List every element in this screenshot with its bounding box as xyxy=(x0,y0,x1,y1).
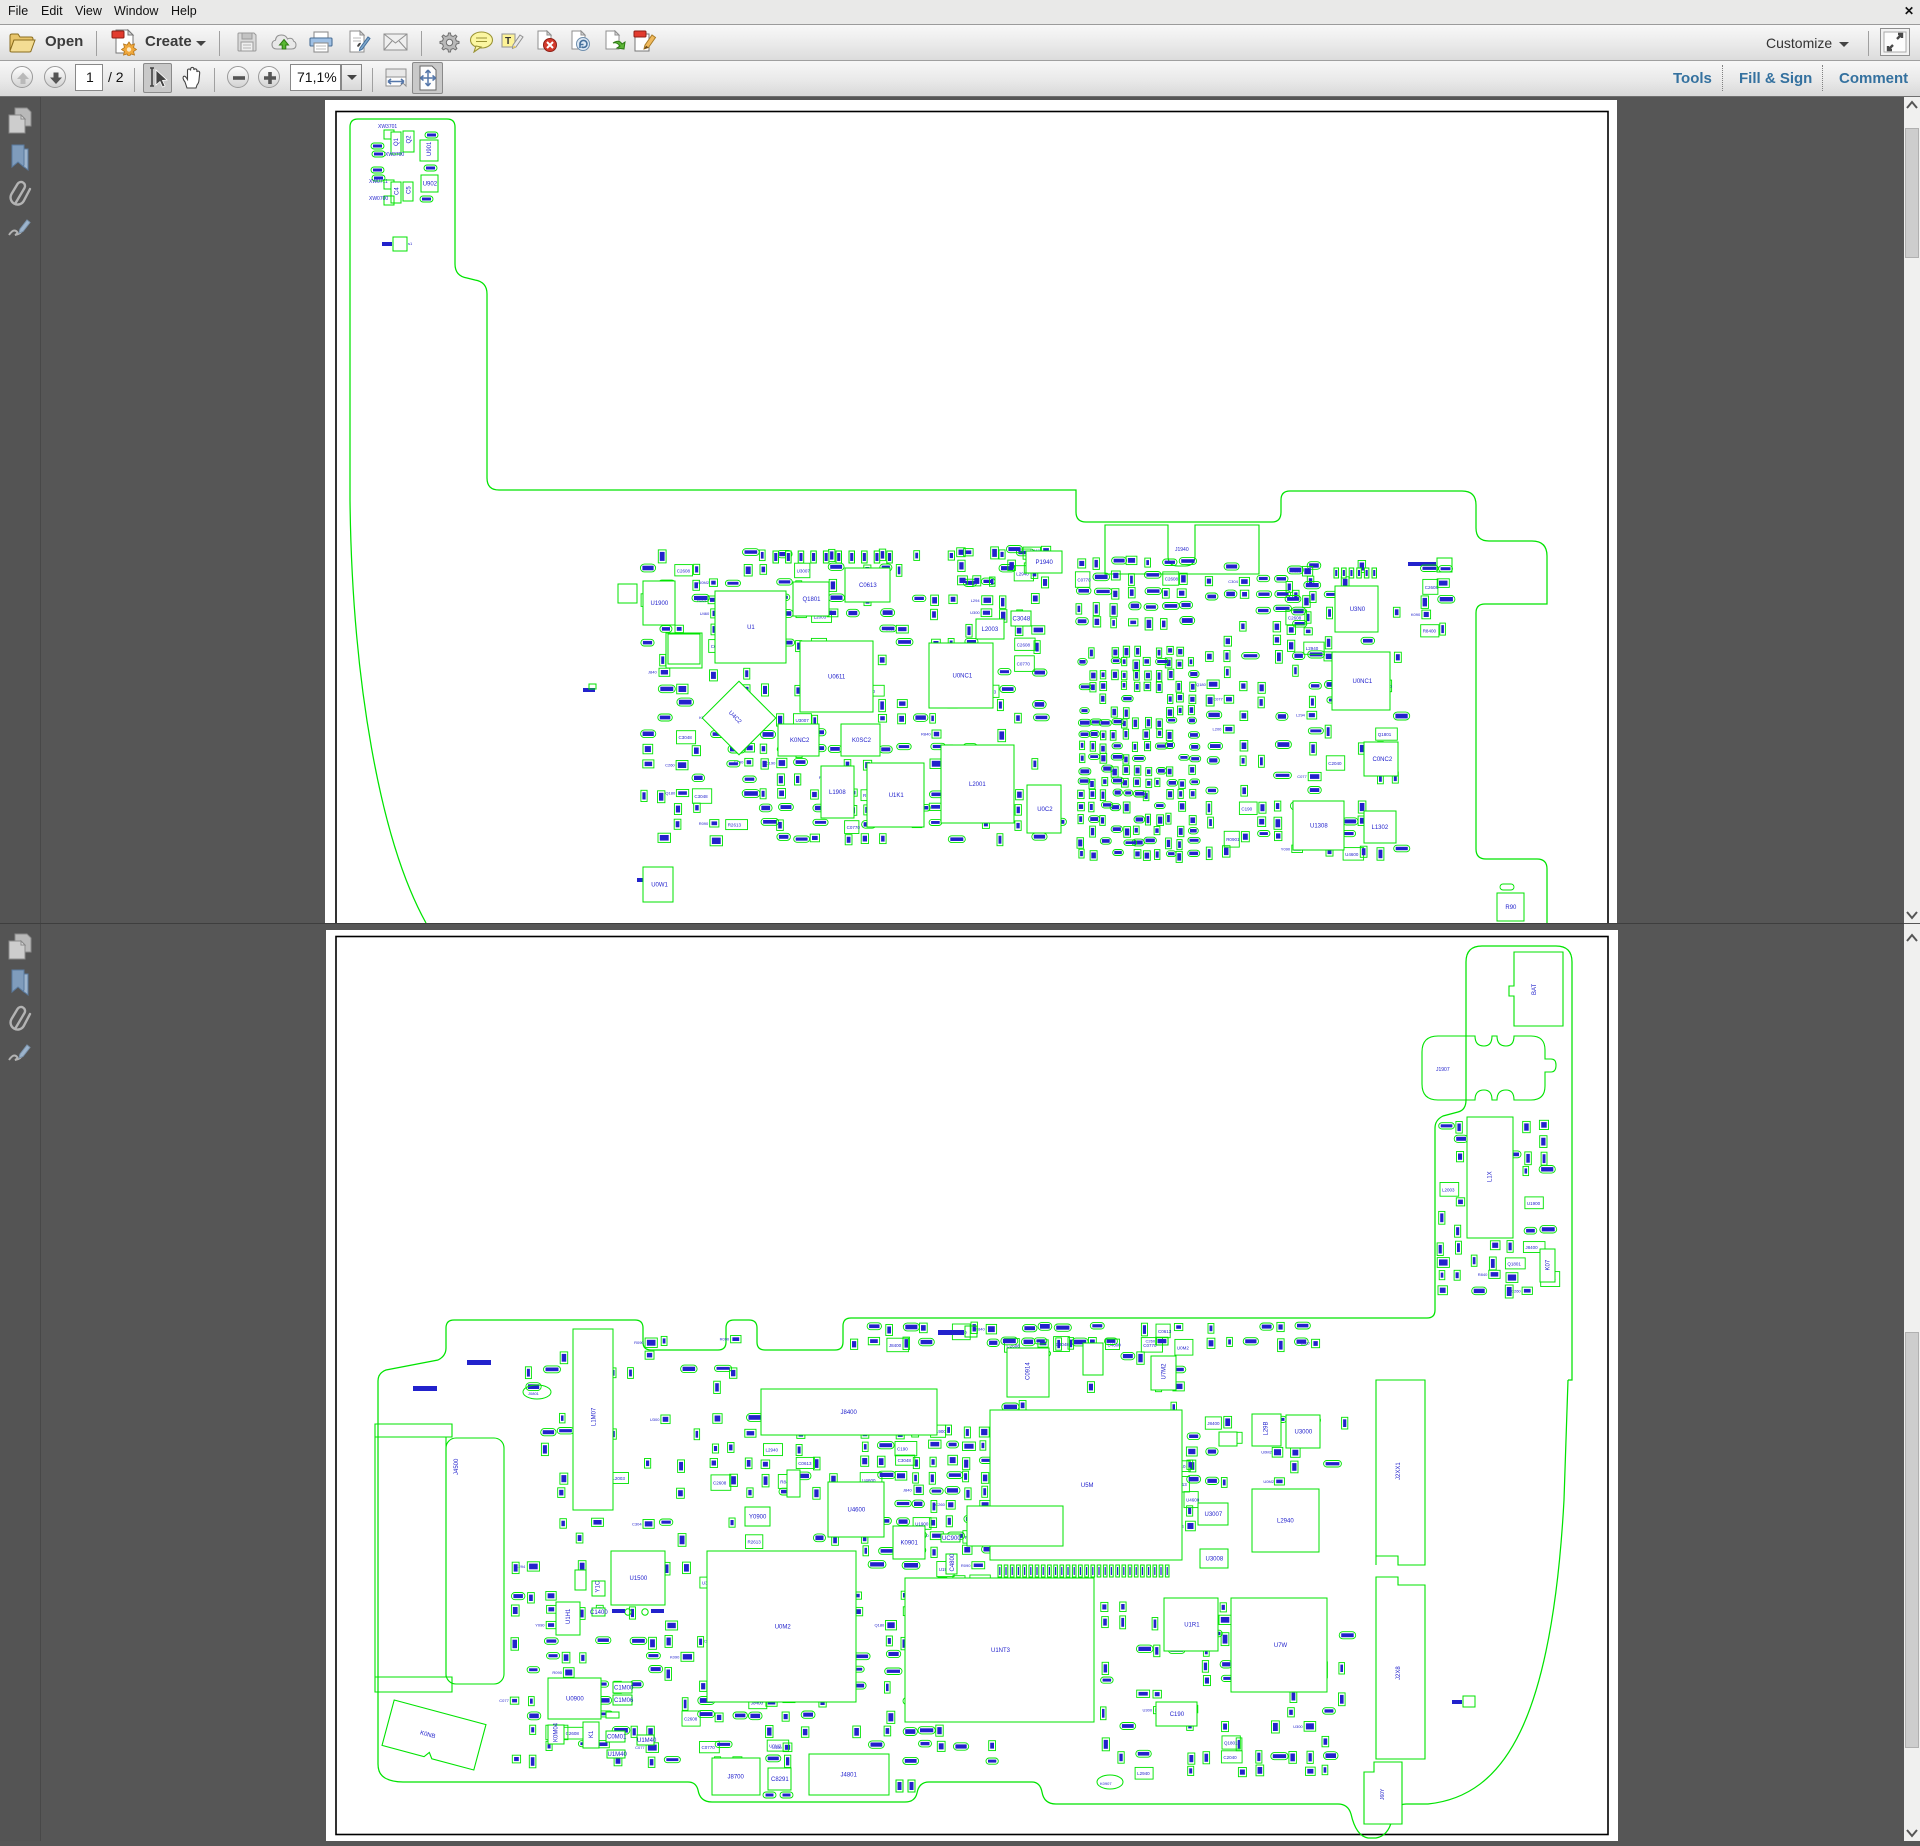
svg-text:C260: C260 xyxy=(665,763,675,768)
svg-text:L2003: L2003 xyxy=(1442,1187,1455,1192)
svg-text:Y090: Y090 xyxy=(1281,846,1291,851)
svg-text:L2003: L2003 xyxy=(612,1476,625,1481)
svg-text:U0611: U0611 xyxy=(828,675,846,681)
svg-text:Q180: Q180 xyxy=(875,1623,886,1628)
svg-text:Y090: Y090 xyxy=(1292,569,1302,574)
svg-text:R90: R90 xyxy=(1505,905,1517,911)
svg-text:C0M01: C0M01 xyxy=(607,1735,627,1741)
svg-text:C1M06: C1M06 xyxy=(614,1698,634,1704)
svg-text:C2040: C2040 xyxy=(1223,1755,1237,1760)
svg-text:K0NC2: K0NC2 xyxy=(790,738,810,744)
svg-text:C077: C077 xyxy=(635,1745,645,1750)
svg-text:Q180: Q180 xyxy=(1196,682,1207,687)
svg-text:C0770: C0770 xyxy=(847,825,861,830)
svg-text:J4801: J4801 xyxy=(841,1773,858,1779)
svg-text:Q1801: Q1801 xyxy=(803,597,822,603)
svg-text:K07: K07 xyxy=(1546,1259,1552,1270)
svg-text:J1907: J1907 xyxy=(1436,1067,1450,1073)
svg-text:C190: C190 xyxy=(897,1447,908,1452)
svg-text:C3048: C3048 xyxy=(1056,1342,1070,1347)
svg-text:J2X8: J2X8 xyxy=(1396,1666,1402,1680)
svg-text:C2608: C2608 xyxy=(713,1481,727,1486)
svg-text:C2040: C2040 xyxy=(1328,761,1342,766)
svg-text:C1400: C1400 xyxy=(590,1610,608,1616)
svg-text:U5M: U5M xyxy=(1081,1483,1094,1489)
svg-text:U0900: U0900 xyxy=(566,1697,584,1703)
svg-text:U3N0: U3N0 xyxy=(1350,607,1366,613)
svg-text:Q1801: Q1801 xyxy=(1224,1741,1238,1746)
svg-text:U1: U1 xyxy=(747,625,755,631)
svg-text:C0914: C0914 xyxy=(1026,1362,1032,1380)
svg-text:J0801: J0801 xyxy=(528,1391,540,1396)
svg-text:XW0700: XW0700 xyxy=(369,196,388,202)
svg-text:XW3700: XW3700 xyxy=(385,152,404,158)
svg-text:J8700: J8700 xyxy=(728,1775,745,1781)
svg-text:K090: K090 xyxy=(670,1654,680,1659)
svg-text:C260: C260 xyxy=(1146,1339,1156,1344)
svg-text:s1: s1 xyxy=(408,241,413,246)
svg-text:C4800: C4800 xyxy=(950,1553,956,1571)
svg-text:C3048: C3048 xyxy=(694,794,708,799)
svg-text:U460: U460 xyxy=(700,611,710,616)
svg-text:L2940: L2940 xyxy=(1306,646,1319,651)
svg-text:L2940: L2940 xyxy=(1277,1519,1294,1525)
svg-text:U3007: U3007 xyxy=(796,718,810,723)
svg-text:U0NC1: U0NC1 xyxy=(1353,679,1373,685)
svg-text:R090: R090 xyxy=(961,1563,971,1568)
svg-text:U4600: U4600 xyxy=(848,1508,866,1514)
svg-text:Y0900: Y0900 xyxy=(749,1515,767,1521)
svg-text:U7W: U7W xyxy=(1274,1643,1288,1649)
svg-text:C2608: C2608 xyxy=(1288,616,1302,621)
svg-text:R261: R261 xyxy=(697,597,707,602)
svg-text:U1R1: U1R1 xyxy=(1184,1623,1200,1629)
svg-text:L1X: L1X xyxy=(1488,1171,1494,1182)
svg-text:U0W1: U0W1 xyxy=(651,883,668,889)
svg-text:L2940: L2940 xyxy=(1137,1771,1150,1776)
svg-text:L294: L294 xyxy=(1296,713,1306,718)
svg-text:C0613: C0613 xyxy=(798,1461,812,1466)
svg-text:R0901: R0901 xyxy=(1226,837,1240,842)
svg-text:L2940: L2940 xyxy=(766,1448,779,1453)
svg-text:Q1801: Q1801 xyxy=(1378,732,1392,737)
svg-text:U1H1: U1H1 xyxy=(566,1608,572,1624)
svg-text:U3007: U3007 xyxy=(797,568,811,573)
svg-text:C190: C190 xyxy=(766,761,776,766)
svg-text:R840: R840 xyxy=(1478,1272,1488,1277)
svg-text:U1500: U1500 xyxy=(630,1576,648,1582)
svg-text:R090: R090 xyxy=(634,1340,644,1345)
svg-text:R2613: R2613 xyxy=(748,1540,762,1545)
svg-text:U4600: U4600 xyxy=(1345,852,1359,857)
svg-text:C304: C304 xyxy=(1228,579,1238,584)
svg-text:U1K1: U1K1 xyxy=(889,793,905,799)
svg-text:C0613: C0613 xyxy=(1158,1329,1172,1334)
svg-text:U3000: U3000 xyxy=(1295,1430,1313,1436)
svg-text:L294: L294 xyxy=(971,598,981,603)
svg-text:BAT: BAT xyxy=(1532,983,1538,995)
svg-text:U1NT3: U1NT3 xyxy=(991,1648,1011,1654)
svg-text:R840: R840 xyxy=(921,732,931,737)
svg-text:K0907: K0907 xyxy=(1100,1781,1112,1786)
svg-text:U1M40: U1M40 xyxy=(608,1752,628,1758)
svg-text:C0613: C0613 xyxy=(859,583,877,589)
svg-text:L2003: L2003 xyxy=(982,627,999,633)
svg-text:K0SC2: K0SC2 xyxy=(852,738,872,744)
svg-text:Y090: Y090 xyxy=(535,1623,545,1628)
svg-text:J8400: J8400 xyxy=(1525,1245,1538,1250)
svg-text:Q1801: Q1801 xyxy=(1507,1261,1521,1266)
svg-text:L29B: L29B xyxy=(1264,1421,1270,1435)
svg-text:Y1C: Y1C xyxy=(596,1580,602,1592)
svg-text:R090: R090 xyxy=(699,821,709,826)
svg-text:K090: K090 xyxy=(1411,612,1421,617)
svg-text:U901: U901 xyxy=(427,141,433,156)
svg-text:U0M2: U0M2 xyxy=(698,580,709,585)
svg-text:R8400: R8400 xyxy=(1423,629,1437,634)
svg-text:UC900: UC900 xyxy=(942,1536,961,1542)
svg-text:J840: J840 xyxy=(648,670,657,675)
svg-text:U1M40: U1M40 xyxy=(637,1738,657,1744)
svg-text:R2613: R2613 xyxy=(728,823,742,828)
svg-text:U0C2: U0C2 xyxy=(1037,807,1053,813)
svg-text:J8400: J8400 xyxy=(1207,1421,1220,1426)
svg-text:U300: U300 xyxy=(1293,1724,1303,1729)
svg-text:L294: L294 xyxy=(516,1564,526,1569)
svg-text:Q180: Q180 xyxy=(665,791,676,796)
svg-text:C0NC2: C0NC2 xyxy=(1373,757,1393,763)
svg-text:C0770: C0770 xyxy=(1077,578,1091,583)
svg-text:C1M00: C1M00 xyxy=(614,1686,634,1692)
svg-text:C077: C077 xyxy=(1301,1341,1311,1346)
svg-text:U0M2: U0M2 xyxy=(1263,1479,1274,1484)
svg-text:C0770: C0770 xyxy=(1017,662,1031,667)
svg-text:C8291: C8291 xyxy=(771,1777,789,1783)
svg-text:C3048: C3048 xyxy=(898,1458,912,1463)
svg-text:U3008: U3008 xyxy=(1206,1557,1224,1563)
svg-text:L200: L200 xyxy=(1213,727,1223,732)
svg-text:XW3701: XW3701 xyxy=(378,124,397,130)
svg-text:J8400: J8400 xyxy=(841,1410,858,1416)
svg-text:C077: C077 xyxy=(1213,697,1223,702)
svg-text:C190: C190 xyxy=(1241,806,1252,811)
svg-text:J4500: J4500 xyxy=(454,1458,460,1475)
svg-text:C2608: C2608 xyxy=(1165,577,1179,582)
svg-text:J2XX1: J2XX1 xyxy=(1396,1462,1402,1480)
svg-text:U1900: U1900 xyxy=(1527,1201,1541,1206)
svg-text:J1940: J1940 xyxy=(1175,547,1189,553)
svg-text:L2001: L2001 xyxy=(969,782,986,788)
svg-text:L1302: L1302 xyxy=(1372,825,1389,831)
svg-text:U1308: U1308 xyxy=(1310,824,1328,830)
svg-text:U1900: U1900 xyxy=(651,601,669,607)
svg-text:P1940: P1940 xyxy=(1036,560,1054,566)
svg-text:R090: R090 xyxy=(720,1337,730,1342)
svg-text:U0M2: U0M2 xyxy=(769,1744,782,1749)
svg-text:U3007: U3007 xyxy=(1205,1512,1223,1518)
svg-text:C077: C077 xyxy=(499,1698,509,1703)
svg-text:U300: U300 xyxy=(650,1417,660,1422)
svg-text:C061: C061 xyxy=(885,627,895,632)
svg-text:T: T xyxy=(505,36,511,47)
svg-text:L1908: L1908 xyxy=(829,790,846,796)
svg-text:U300: U300 xyxy=(1143,1708,1153,1713)
svg-text:K090: K090 xyxy=(1347,818,1357,823)
svg-text:R090: R090 xyxy=(552,1670,562,1675)
svg-text:U902: U902 xyxy=(423,182,438,188)
svg-text:U7M2: U7M2 xyxy=(1162,1363,1168,1380)
svg-text:U0NC1: U0NC1 xyxy=(953,674,973,680)
svg-text:Q2: Q2 xyxy=(406,135,412,144)
svg-text:C077: C077 xyxy=(1297,774,1307,779)
svg-text:U4600: U4600 xyxy=(1186,1498,1200,1503)
svg-text:C2608: C2608 xyxy=(1017,642,1031,647)
svg-text:C2608: C2608 xyxy=(684,1717,698,1722)
svg-text:C190: C190 xyxy=(1170,1712,1185,1718)
svg-text:J8400: J8400 xyxy=(889,1343,902,1348)
svg-text:U0M2: U0M2 xyxy=(1261,1450,1272,1455)
svg-text:Q1: Q1 xyxy=(394,137,400,146)
svg-text:C2608: C2608 xyxy=(677,568,691,573)
svg-text:C5: C5 xyxy=(406,186,412,194)
svg-text:C3048: C3048 xyxy=(679,735,693,740)
svg-text:C0770: C0770 xyxy=(702,1745,716,1750)
svg-text:K0M04: K0M04 xyxy=(554,1722,560,1742)
svg-text:J840: J840 xyxy=(903,1487,912,1492)
svg-text:K0901: K0901 xyxy=(901,1541,919,1547)
svg-text:C4: C4 xyxy=(394,187,400,195)
svg-text:U0M2: U0M2 xyxy=(1177,1345,1190,1350)
svg-text:C2608: C2608 xyxy=(1425,585,1439,590)
svg-text:K1: K1 xyxy=(589,1730,595,1738)
svg-text:U300: U300 xyxy=(970,610,980,615)
svg-text:J60Y: J60Y xyxy=(1380,1788,1386,1800)
svg-text:U0M2: U0M2 xyxy=(775,1625,792,1631)
svg-text:C304: C304 xyxy=(632,1522,642,1527)
svg-text:L1M07: L1M07 xyxy=(592,1407,598,1426)
svg-text:C3048: C3048 xyxy=(1013,617,1031,623)
